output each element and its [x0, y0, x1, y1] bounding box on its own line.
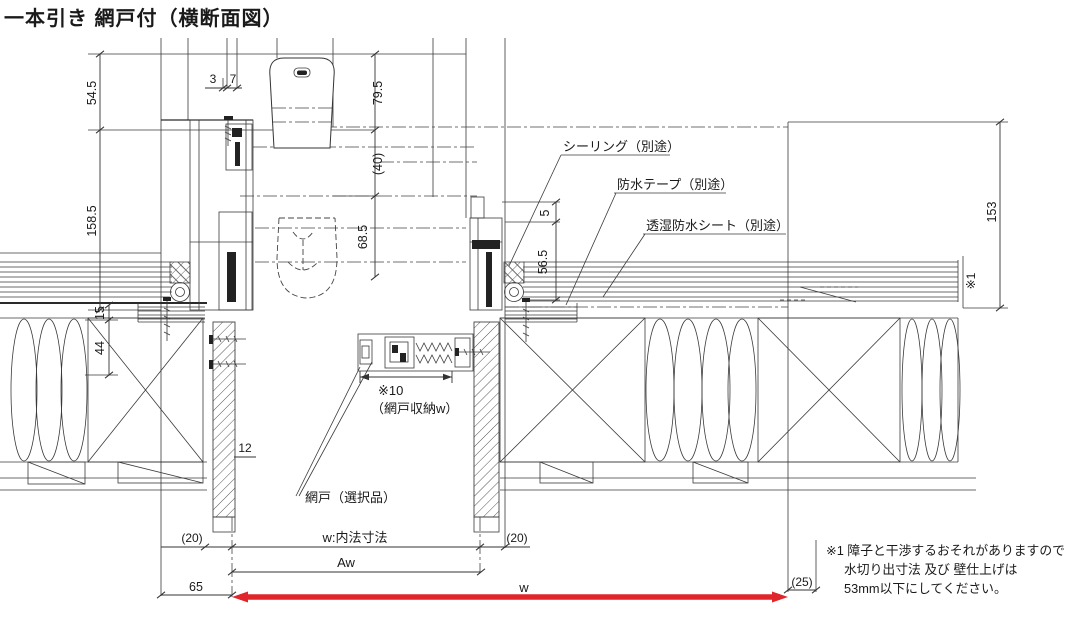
right-insulation-2 [902, 318, 960, 462]
right-insulation-1 [646, 319, 756, 461]
left-insulation [11, 319, 87, 461]
drawing-page: 一本引き 網戸付（横断面図） 54.5 158.5 15 44 3 7 79.5… [0, 0, 1083, 618]
dim-54-5: 54.5 [85, 81, 99, 105]
right-sill-flashing [505, 303, 577, 322]
dim-3: 3 [210, 72, 217, 86]
siding-break-symbol [780, 287, 858, 302]
right-stud-cross-2 [758, 318, 900, 462]
right-furring-strips [540, 462, 748, 483]
dim-5: 5 [538, 209, 552, 216]
note-block: ※1 障子と干渉するおそれがありますので 水切り出寸法 及び 壁仕上げは 53m… [826, 543, 1065, 596]
dim-gap-left: (20) [181, 531, 202, 545]
dim-44: 44 [93, 341, 107, 355]
left-furring-strips [28, 462, 203, 484]
left-wood-post-hatched [213, 322, 235, 517]
dim-40: (40) [371, 153, 385, 175]
red-measure-highlight [232, 592, 788, 603]
sealant-left [170, 262, 190, 302]
door-handle-grip [277, 218, 337, 298]
left-jamb-frame [138, 116, 253, 597]
dim-inner-width: w:内法寸法 [321, 530, 387, 545]
dim-12: 12 [238, 441, 252, 455]
label-breathable-sheet: 透湿防水シート（別途） [646, 218, 789, 233]
left-sill-flashing [138, 303, 205, 322]
screw-right-wall [522, 298, 530, 342]
left-stud-cross [88, 318, 203, 462]
dim-w: w [518, 580, 529, 595]
right-wood-post-hatched [474, 322, 499, 517]
label-waterproof-tape: 防水テープ（別途） [617, 177, 733, 192]
left-siding-layers [0, 262, 172, 297]
cross-section-drawing: 一本引き 網戸付（横断面図） 54.5 158.5 15 44 3 7 79.5… [0, 0, 1083, 618]
label-wall-ref: ※1 [964, 272, 978, 289]
dim-gap-right: (20) [506, 531, 527, 545]
sealant-right [504, 262, 524, 302]
spring-zigzag-1 [416, 343, 452, 351]
dim-7: 7 [230, 72, 237, 86]
dim-79-5: 79.5 [371, 81, 385, 105]
right-stud-cross-1 [500, 318, 645, 462]
dim-68-5: 68.5 [356, 225, 370, 249]
left-wall [0, 253, 207, 490]
dim-25: (25) [791, 575, 812, 589]
door-handle-top [270, 58, 334, 148]
dim-15: 15 [93, 306, 107, 320]
right-siding-layers [523, 256, 963, 308]
label-screen-door: 網戸（選択品） [305, 490, 396, 505]
dim-153: 153 [985, 202, 999, 223]
note-line-1: ※1 障子と干渉するおそれがありますので [826, 543, 1065, 558]
drawing-title: 一本引き 網戸付（横断面図） [4, 6, 284, 30]
right-wall [500, 256, 976, 490]
note-line-2: 水切り出寸法 及び 壁仕上げは [844, 562, 1018, 577]
note-line-3: 53mm以下にしてください。 [844, 581, 1007, 596]
dim-56-5: 56.5 [536, 250, 550, 274]
label-screen-ref: ※10 [378, 383, 403, 398]
right-jamb-frame [470, 197, 577, 573]
spring-zigzag-2 [416, 355, 452, 363]
callout-leaders [296, 155, 786, 496]
screen-storage-assembly [358, 334, 490, 371]
label-sealing: シーリング（別途） [563, 139, 680, 154]
dim-158-5: 158.5 [85, 205, 99, 236]
dim-65: 65 [189, 580, 203, 594]
label-screen-width: （網戸収納w） [371, 401, 458, 416]
dim-aw: Aw [337, 555, 355, 570]
